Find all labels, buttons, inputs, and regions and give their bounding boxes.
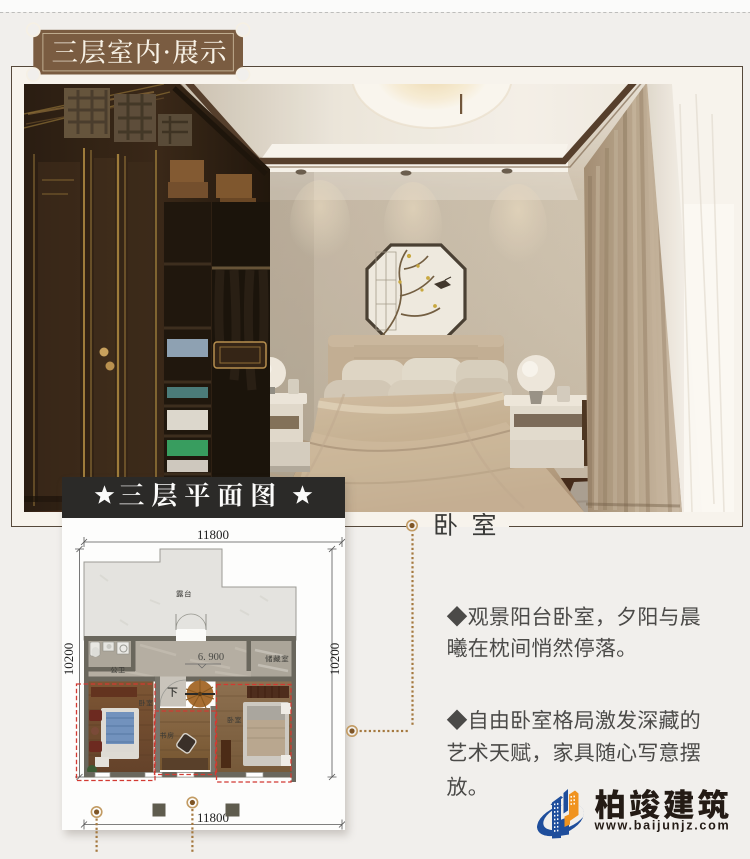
- svg-text:6. 900: 6. 900: [198, 652, 224, 663]
- svg-text:10200: 10200: [62, 643, 76, 676]
- svg-text:11800: 11800: [197, 527, 229, 542]
- svg-text:www.baijunjz.com: www.baijunjz.com: [594, 819, 731, 833]
- svg-text:11800: 11800: [197, 810, 229, 825]
- svg-text:10200: 10200: [327, 643, 342, 676]
